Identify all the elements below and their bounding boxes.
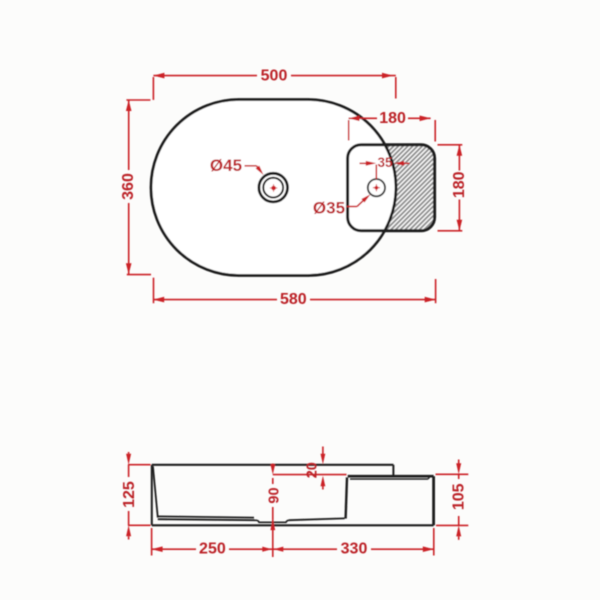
svg-text:105: 105 (451, 483, 468, 510)
svg-text:125: 125 (121, 481, 138, 508)
svg-text:35: 35 (377, 155, 393, 170)
svg-text:360: 360 (120, 173, 137, 200)
svg-text:250: 250 (199, 541, 226, 558)
svg-text:90: 90 (266, 487, 282, 503)
svg-text:500: 500 (261, 67, 288, 84)
svg-text:580: 580 (280, 291, 307, 308)
svg-text:20: 20 (305, 462, 321, 478)
svg-text:180: 180 (379, 110, 406, 127)
svg-text:330: 330 (341, 541, 368, 558)
svg-text:Ø45: Ø45 (210, 156, 242, 175)
svg-text:180: 180 (451, 171, 468, 198)
svg-text:Ø35: Ø35 (313, 198, 345, 217)
